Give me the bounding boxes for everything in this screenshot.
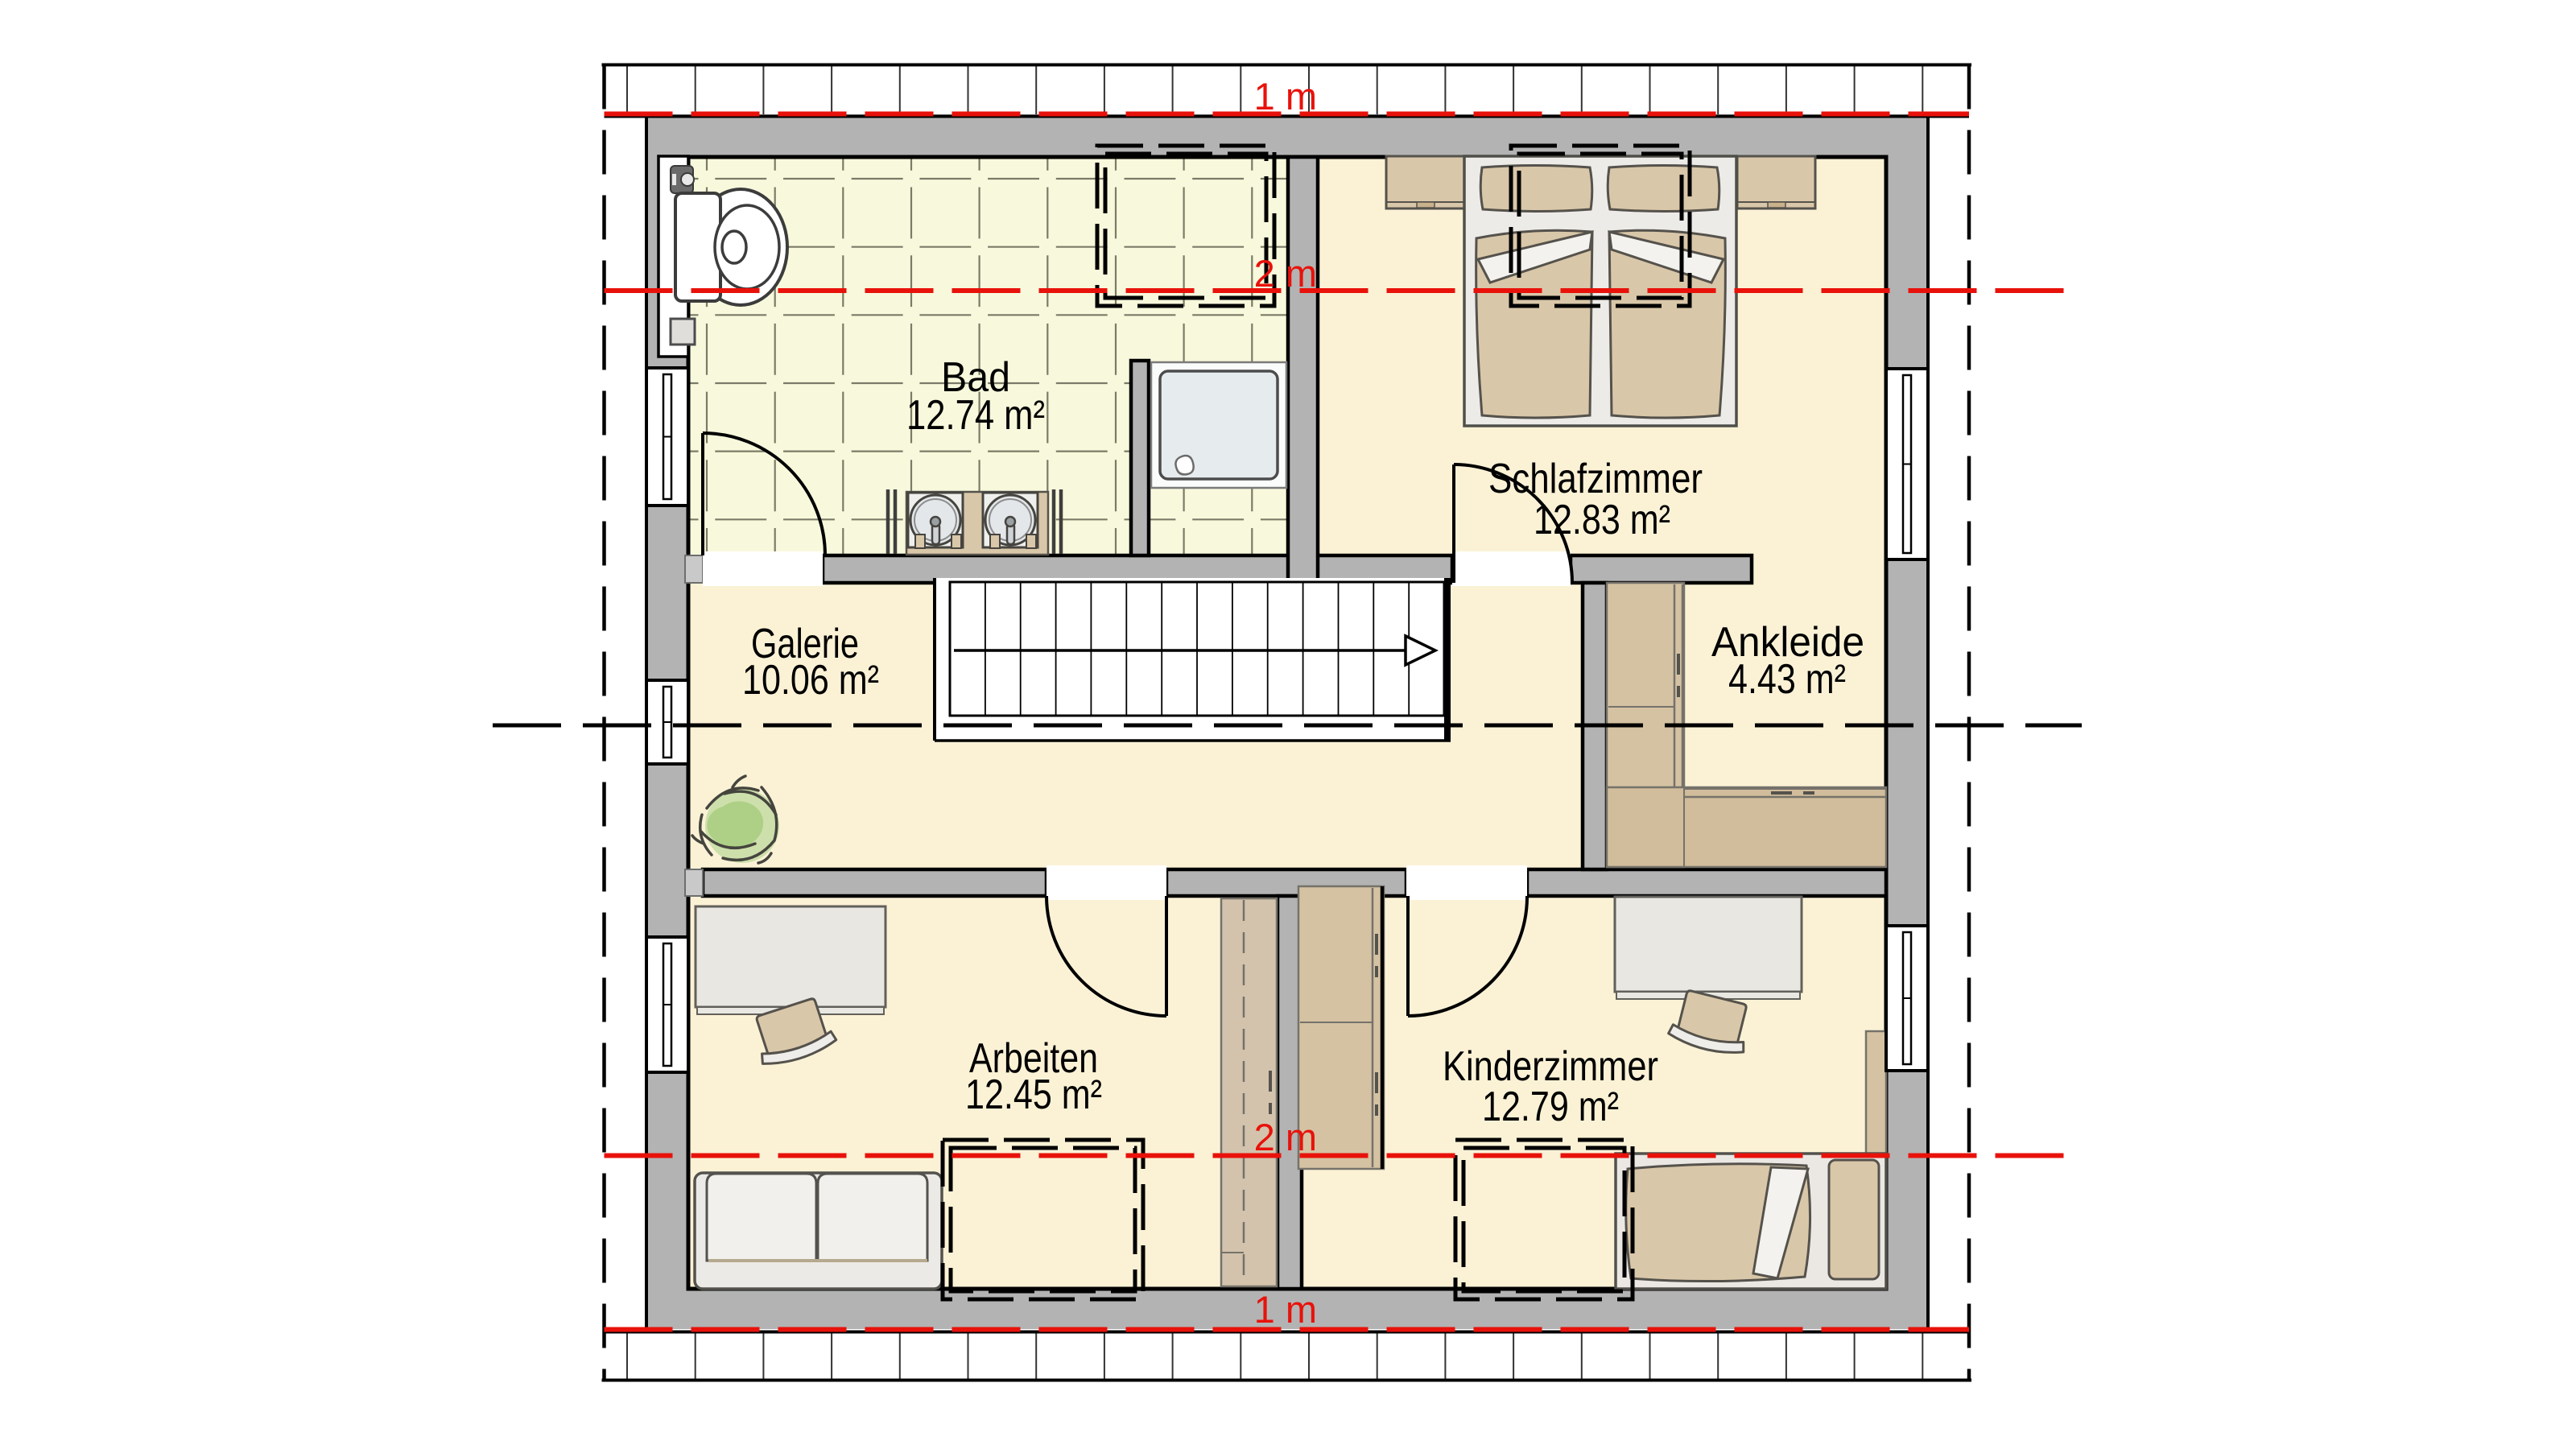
svg-text:4.43 m²: 4.43 m² <box>1728 656 1846 703</box>
svg-text:1 m: 1 m <box>1254 75 1317 118</box>
svg-text:12.74 m²: 12.74 m² <box>906 392 1045 439</box>
svg-text:Schlafzimmer: Schlafzimmer <box>1488 456 1703 502</box>
svg-text:1 m: 1 m <box>1254 1288 1317 1331</box>
svg-text:12.45 m²: 12.45 m² <box>965 1071 1102 1118</box>
svg-text:12.79 m²: 12.79 m² <box>1482 1084 1619 1130</box>
svg-text:10.06 m²: 10.06 m² <box>742 657 879 704</box>
svg-text:2 m: 2 m <box>1254 252 1317 295</box>
svg-text:2 m: 2 m <box>1254 1116 1317 1158</box>
svg-text:12.83 m²: 12.83 m² <box>1534 497 1670 543</box>
